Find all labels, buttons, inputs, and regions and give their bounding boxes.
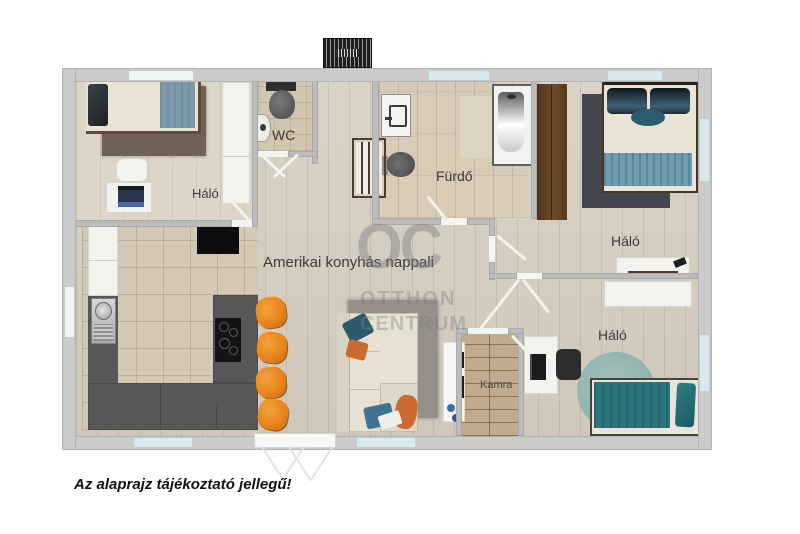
pillow bbox=[88, 84, 108, 126]
cooktop bbox=[215, 318, 241, 362]
window bbox=[64, 286, 75, 338]
floor-plan: Háló WC Fürdő Háló Amerikai konyhás napp… bbox=[0, 0, 800, 534]
desk bbox=[524, 336, 558, 394]
window bbox=[128, 70, 194, 81]
bar-stool bbox=[255, 366, 287, 399]
bar-stool bbox=[256, 331, 289, 364]
blanket bbox=[604, 153, 692, 186]
disclaimer-text: Az alaprajz tájékoztató jellegű! bbox=[74, 476, 292, 493]
ladder-rack bbox=[352, 138, 386, 198]
single-bed bbox=[86, 81, 201, 134]
wall bbox=[531, 78, 537, 219]
fridge-cabinet bbox=[88, 226, 118, 296]
wardrobe bbox=[222, 82, 250, 204]
desk-chair bbox=[116, 158, 148, 182]
room-label-pantry: Kamra bbox=[480, 379, 512, 391]
watermark-monogram: OC bbox=[356, 210, 440, 282]
door-sill bbox=[489, 236, 495, 262]
room-label-bathroom: Fürdő bbox=[436, 168, 473, 184]
kitchen-appliance bbox=[197, 227, 239, 254]
cushion bbox=[631, 109, 665, 126]
toilet-bowl bbox=[387, 152, 415, 177]
window bbox=[607, 70, 663, 81]
window bbox=[356, 437, 416, 448]
window bbox=[699, 334, 710, 392]
room-label-bedroom-tr: Háló bbox=[611, 233, 640, 249]
bathtub bbox=[492, 84, 534, 166]
desk bbox=[106, 182, 152, 213]
double-bed bbox=[602, 80, 698, 193]
room-label-wc: WC bbox=[272, 127, 295, 143]
window bbox=[699, 118, 710, 182]
door-swing bbox=[282, 446, 305, 480]
room-label-bedroom-tl: Háló bbox=[192, 186, 219, 201]
chimney bbox=[323, 38, 372, 68]
outer-wall-left bbox=[62, 68, 76, 450]
computer-monitor bbox=[530, 354, 546, 380]
door-sill bbox=[517, 273, 542, 279]
window bbox=[133, 437, 193, 448]
window bbox=[428, 70, 490, 81]
door-sill bbox=[468, 328, 508, 334]
blanket bbox=[160, 81, 195, 128]
wall bbox=[62, 220, 232, 227]
door-swing bbox=[310, 446, 333, 481]
computer-monitor bbox=[118, 186, 144, 207]
wall bbox=[456, 328, 462, 436]
pillow bbox=[675, 383, 696, 428]
bath-mat bbox=[460, 96, 492, 158]
wardrobe bbox=[604, 281, 692, 307]
kitchen-sink bbox=[91, 298, 116, 344]
room-label-bedroom-br: Háló bbox=[598, 327, 627, 343]
entrance-door bbox=[254, 433, 336, 448]
wall bbox=[508, 328, 524, 334]
watermark-line1: OTTHON bbox=[360, 288, 456, 311]
toilet-bowl bbox=[269, 90, 295, 119]
wall bbox=[542, 273, 698, 279]
washbasin bbox=[381, 94, 411, 137]
watermark-line2: CENTRUM bbox=[360, 313, 467, 336]
hand-sink bbox=[256, 114, 271, 142]
single-bed bbox=[590, 378, 702, 436]
wall bbox=[489, 218, 495, 236]
wall bbox=[489, 273, 517, 279]
wall bbox=[372, 78, 379, 225]
wardrobe bbox=[537, 84, 567, 220]
mattress bbox=[594, 382, 670, 428]
desk-chair bbox=[556, 349, 581, 380]
kitchen-counter-bottom bbox=[88, 383, 258, 430]
